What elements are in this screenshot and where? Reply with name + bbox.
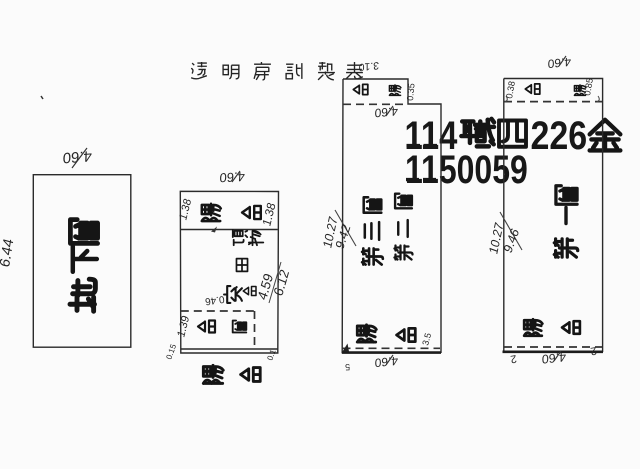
svg-text:4.60: 4.60 — [219, 169, 245, 185]
svg-text:226: 226 — [531, 112, 588, 157]
svg-text:1150059: 1150059 — [405, 147, 528, 192]
svg-text:4.60: 4.60 — [542, 349, 566, 366]
svg-text:4.60: 4.60 — [62, 147, 92, 166]
svg-text:4.60: 4.60 — [374, 353, 398, 370]
svg-text:5: 5 — [345, 362, 350, 372]
svg-text:4.60: 4.60 — [547, 54, 571, 71]
svg-text:3.10: 3.10 — [359, 59, 379, 73]
svg-text:4.60: 4.60 — [374, 104, 398, 120]
svg-text:0.35: 0.35 — [405, 83, 416, 101]
